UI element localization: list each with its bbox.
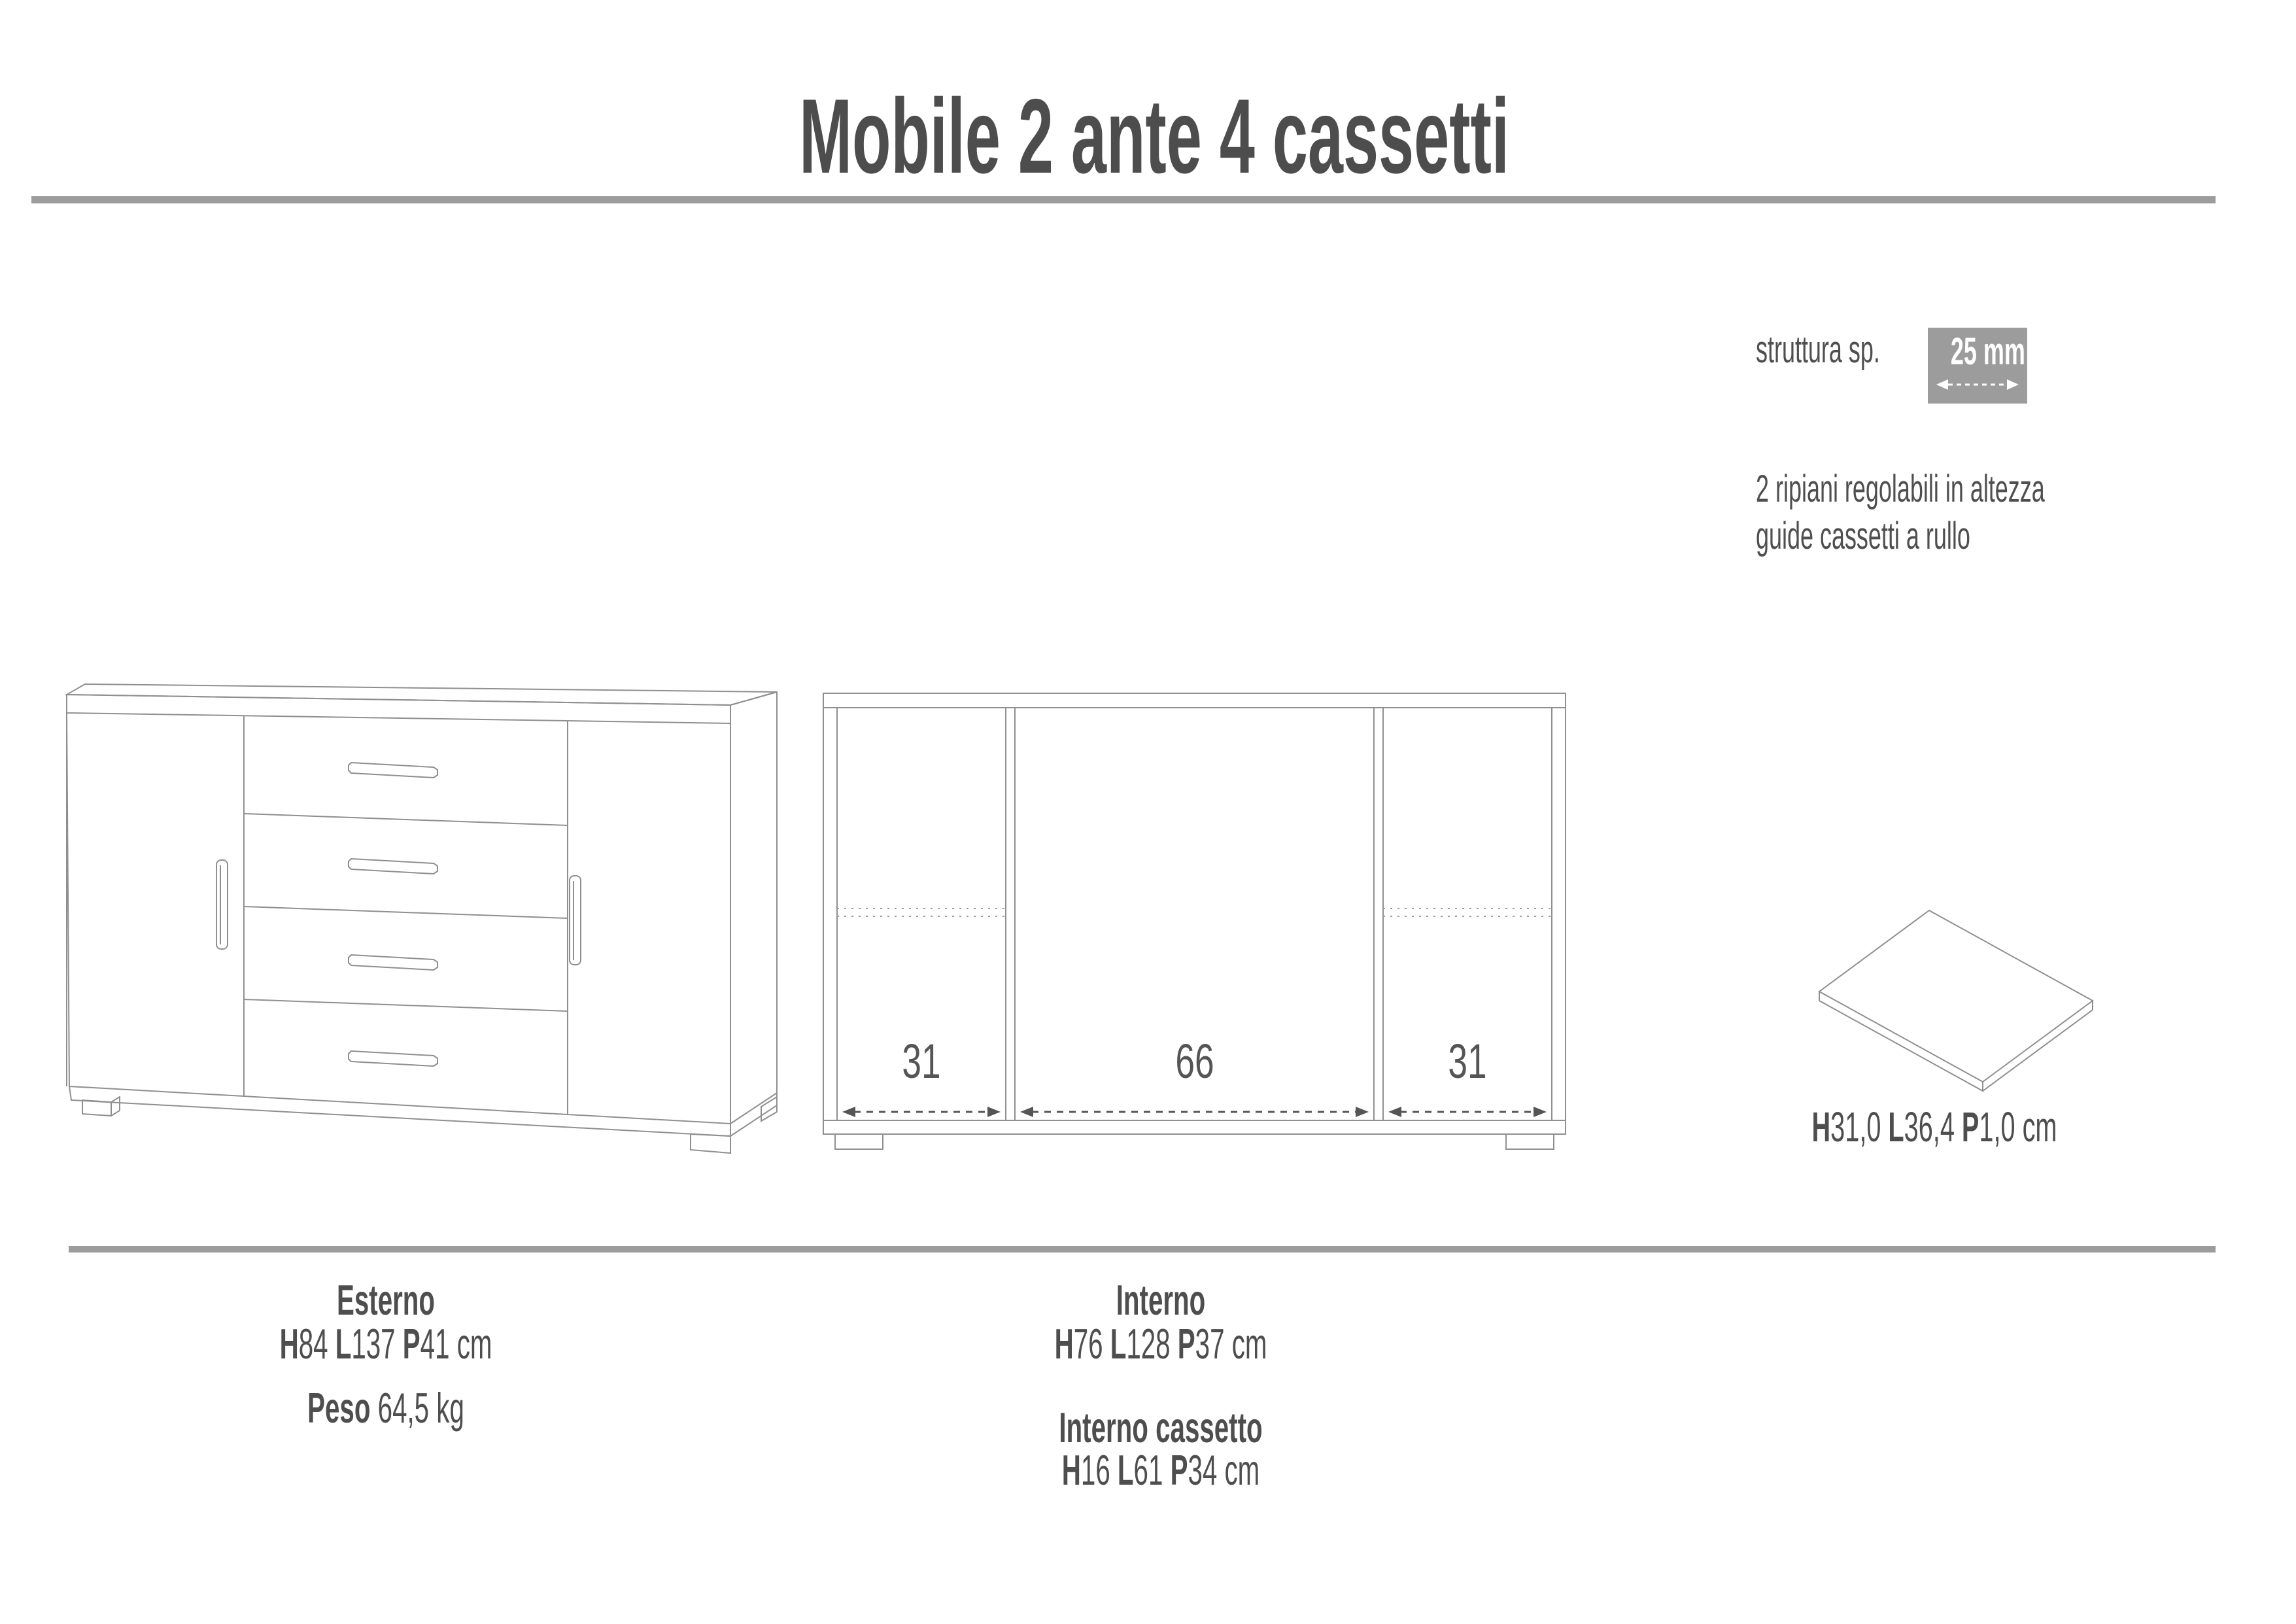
feature-line-2: guide cassetti a rullo [1756,513,1970,560]
drawer-handles [349,763,437,1066]
thickness-arrow-icon [1935,377,2020,392]
weight-line: Peso 64,5 kg [260,1387,513,1429]
interno-dimensions: H76 L128 P37 cm [989,1322,1332,1365]
right-door-handle [570,876,581,965]
interno-heading: Interno [1089,1279,1233,1321]
internal-feet [835,1134,1554,1149]
internal-width-right: 31 [1441,1037,1494,1086]
esterno-dimensions: H84 L137 P41 cm [214,1322,557,1365]
cabinet-front-drawing [52,674,863,1184]
cabinet-top-panel [67,684,777,723]
drawer-divider-lines [244,814,568,1011]
width-arrow-right-icon [1388,1107,1547,1117]
internal-width-middle: 66 [1168,1037,1222,1086]
header-divider [31,196,2216,203]
feature-line-1: 2 ripiani regolabili in altezza [1756,466,2045,513]
thickness-value: 25 mm [1951,333,2025,371]
shelf-panel [1819,910,2093,1091]
internal-width-left: 31 [895,1037,948,1086]
interno-cassetto-heading: Interno cassetto [997,1406,1325,1449]
feature-notes: 2 ripiani regolabili in altezza guide ca… [1756,466,2222,560]
footer-divider [69,1246,2216,1253]
cabinet-internal-drawing [811,687,1596,1171]
page-title: Mobile 2 ante 4 cassetti [562,84,1746,190]
shelf-dimensions: H31,0 L36,4 P1,0 cm [1737,1106,2133,1148]
adjustable-shelf-dotted-lines [837,908,1552,916]
esterno-heading: Esterno [307,1279,465,1321]
width-arrow-middle-icon [1020,1107,1369,1117]
left-door-handle [216,860,228,949]
structure-thickness-label: struttura sp. [1756,331,1956,369]
shelf-drawing [1792,903,2132,1112]
thickness-badge: 25 mm [1928,328,2027,404]
spec-sheet-page: { "page": { "background": "#ffffff", "ru… [0,0,2296,1624]
width-arrow-left-icon [842,1107,1001,1117]
cabinet-front-face [67,713,730,1136]
cabinet-side-panel [730,692,777,1136]
cabinet-feet [82,1097,777,1153]
interno-cassetto-dimensions: H16 L61 P34 cm [1001,1449,1320,1491]
